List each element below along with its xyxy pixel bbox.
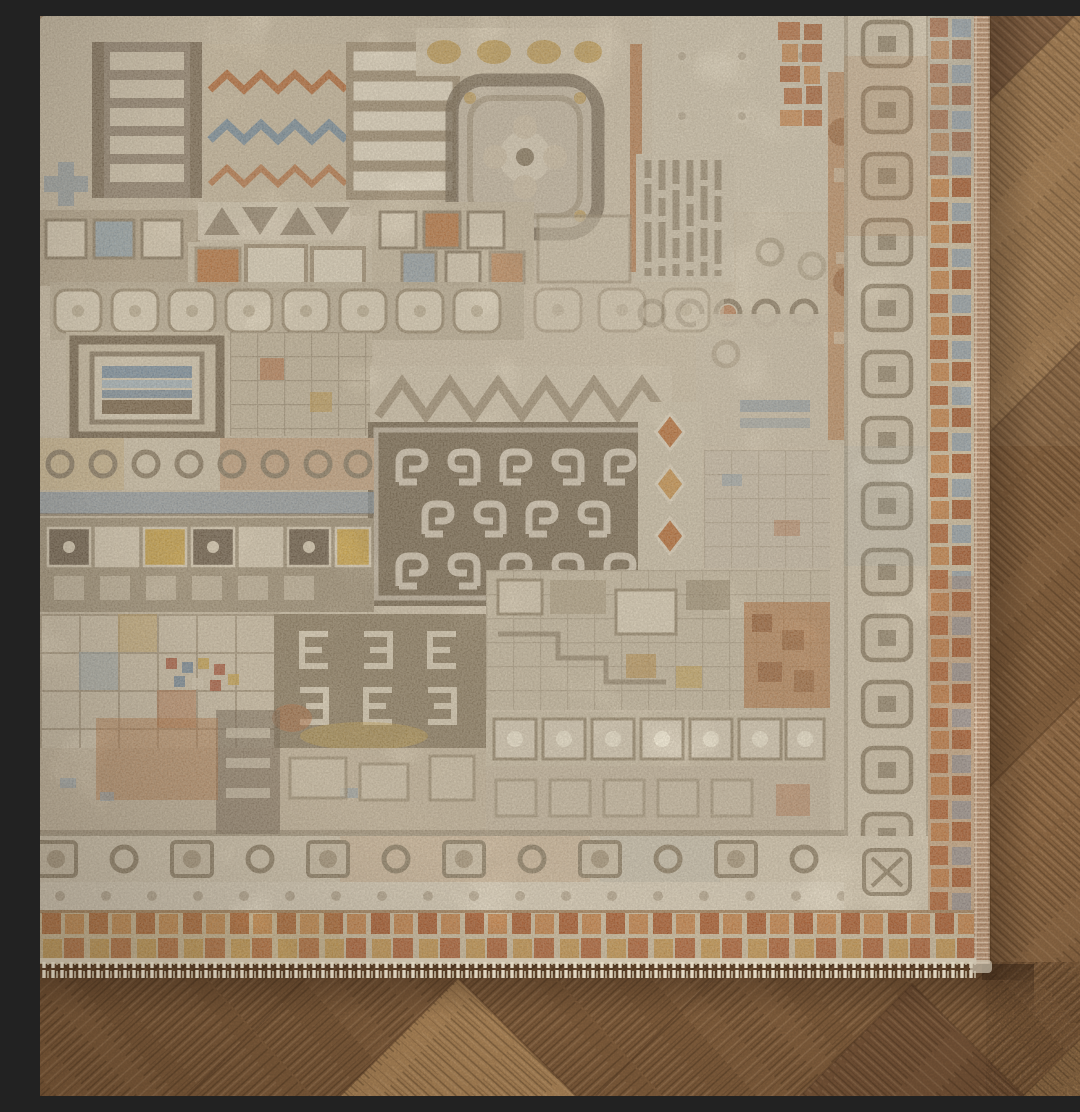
vignette bbox=[40, 16, 1080, 1096]
photo-scene: Close-up photograph of the corner of a v… bbox=[40, 16, 1080, 1096]
